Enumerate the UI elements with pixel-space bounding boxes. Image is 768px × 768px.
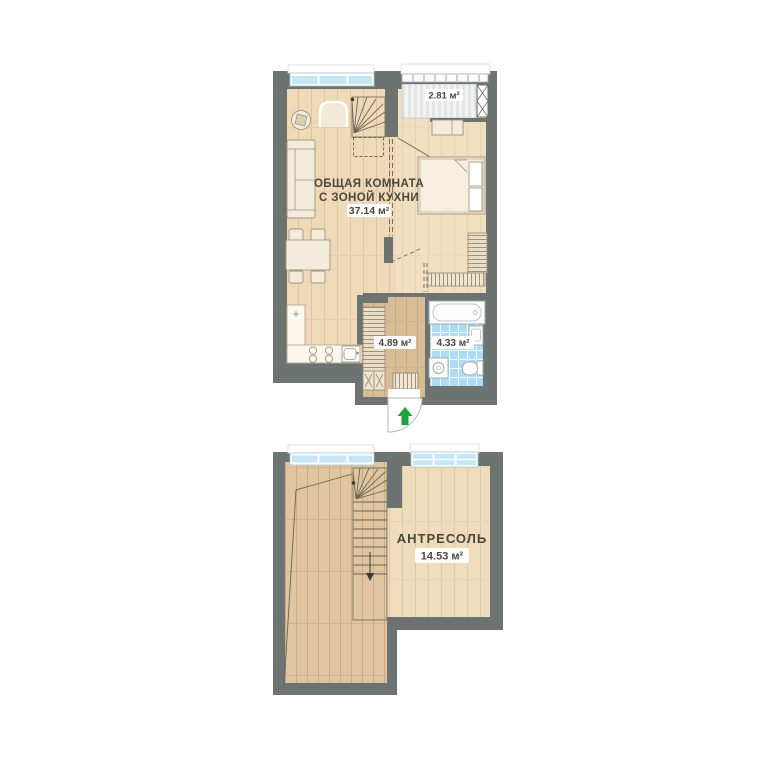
toilet [463, 361, 484, 375]
mezzanine-partition-wall [387, 460, 402, 508]
window-lower-left [290, 453, 374, 465]
living-room-label-line1: ОБЩАЯ КОМНАТА [314, 178, 424, 190]
mezzanine-area: 14.53 м² [421, 551, 464, 563]
lower-floor-plan: АНТРЕСОЛЬ 14.53 м² [273, 444, 503, 695]
hall-storage-boxes [363, 371, 385, 390]
balcony-bench [432, 120, 463, 135]
window-lower-right [411, 452, 478, 467]
stair-partition-wall [385, 71, 398, 137]
balcony-shaft-box [477, 85, 488, 117]
hallway-area: 4.89 м² [379, 338, 413, 349]
column [384, 237, 393, 263]
round-table-with-chair [292, 111, 311, 130]
balcony-area: 2.81 м² [428, 91, 459, 102]
radiator-shelf [428, 273, 485, 286]
doormat [393, 373, 418, 389]
upper-floor-plan: ОБЩАЯ КОМНАТА С ЗОНОЙ КУХНИ 37.14 м² 2.8… [273, 64, 497, 432]
void-room-floor [285, 462, 387, 683]
hall-top-wall [357, 295, 388, 303]
window-sill-balcony [401, 64, 490, 74]
bed [418, 157, 485, 214]
floor-plan-canvas: ОБЩАЯ КОМНАТА С ЗОНОЙ КУХНИ 37.14 м² 2.8… [0, 0, 768, 768]
window-sill-lower-left [288, 445, 374, 453]
bedside-rack [468, 233, 487, 273]
balcony-glazing [402, 74, 488, 82]
sofa [287, 140, 315, 218]
armchair-arch [320, 102, 347, 127]
kitchen-sink [342, 346, 360, 362]
floor-plan-svg: ОБЩАЯ КОМНАТА С ЗОНОЙ КУХНИ 37.14 м² 2.8… [0, 0, 768, 768]
hall-left-wall [357, 295, 363, 352]
living-room-area: 37.14 м² [349, 205, 390, 217]
living-room-label-line2: С ЗОНОЙ КУХНИ [319, 191, 419, 204]
window-sill-upper-left [288, 65, 374, 73]
bathroom-area: 4.33 м² [437, 338, 471, 349]
bathtub [429, 301, 485, 324]
mezzanine-label: АНТРЕСОЛЬ [397, 531, 487, 546]
washing-machine [429, 358, 448, 378]
window-upper-left [290, 73, 374, 86]
